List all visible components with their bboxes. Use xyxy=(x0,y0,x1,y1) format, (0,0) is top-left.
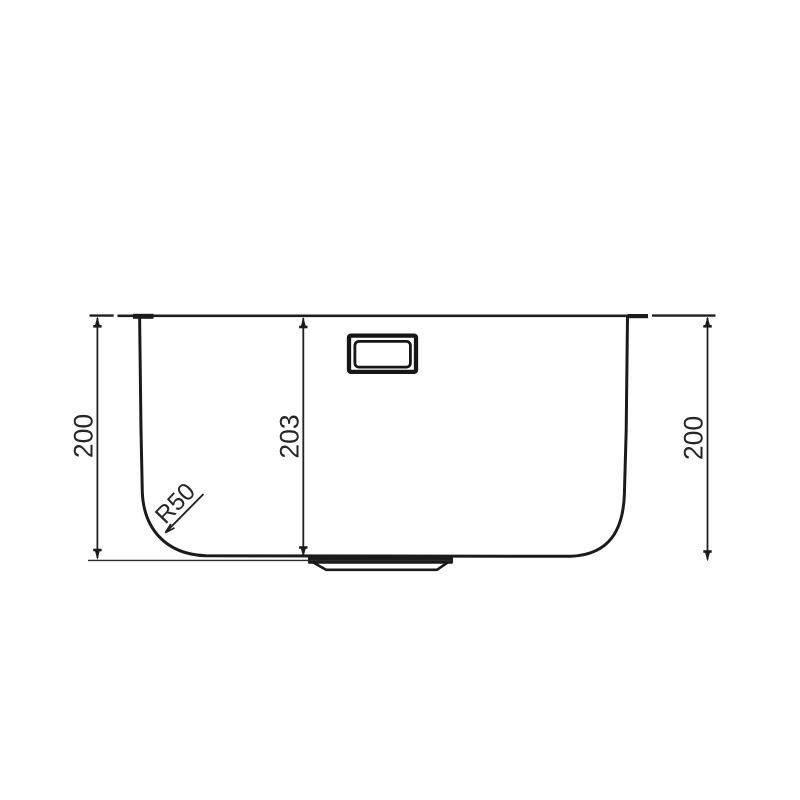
svg-text:200: 200 xyxy=(69,414,99,458)
svg-text:203: 203 xyxy=(275,414,305,458)
svg-text:200: 200 xyxy=(679,416,709,460)
